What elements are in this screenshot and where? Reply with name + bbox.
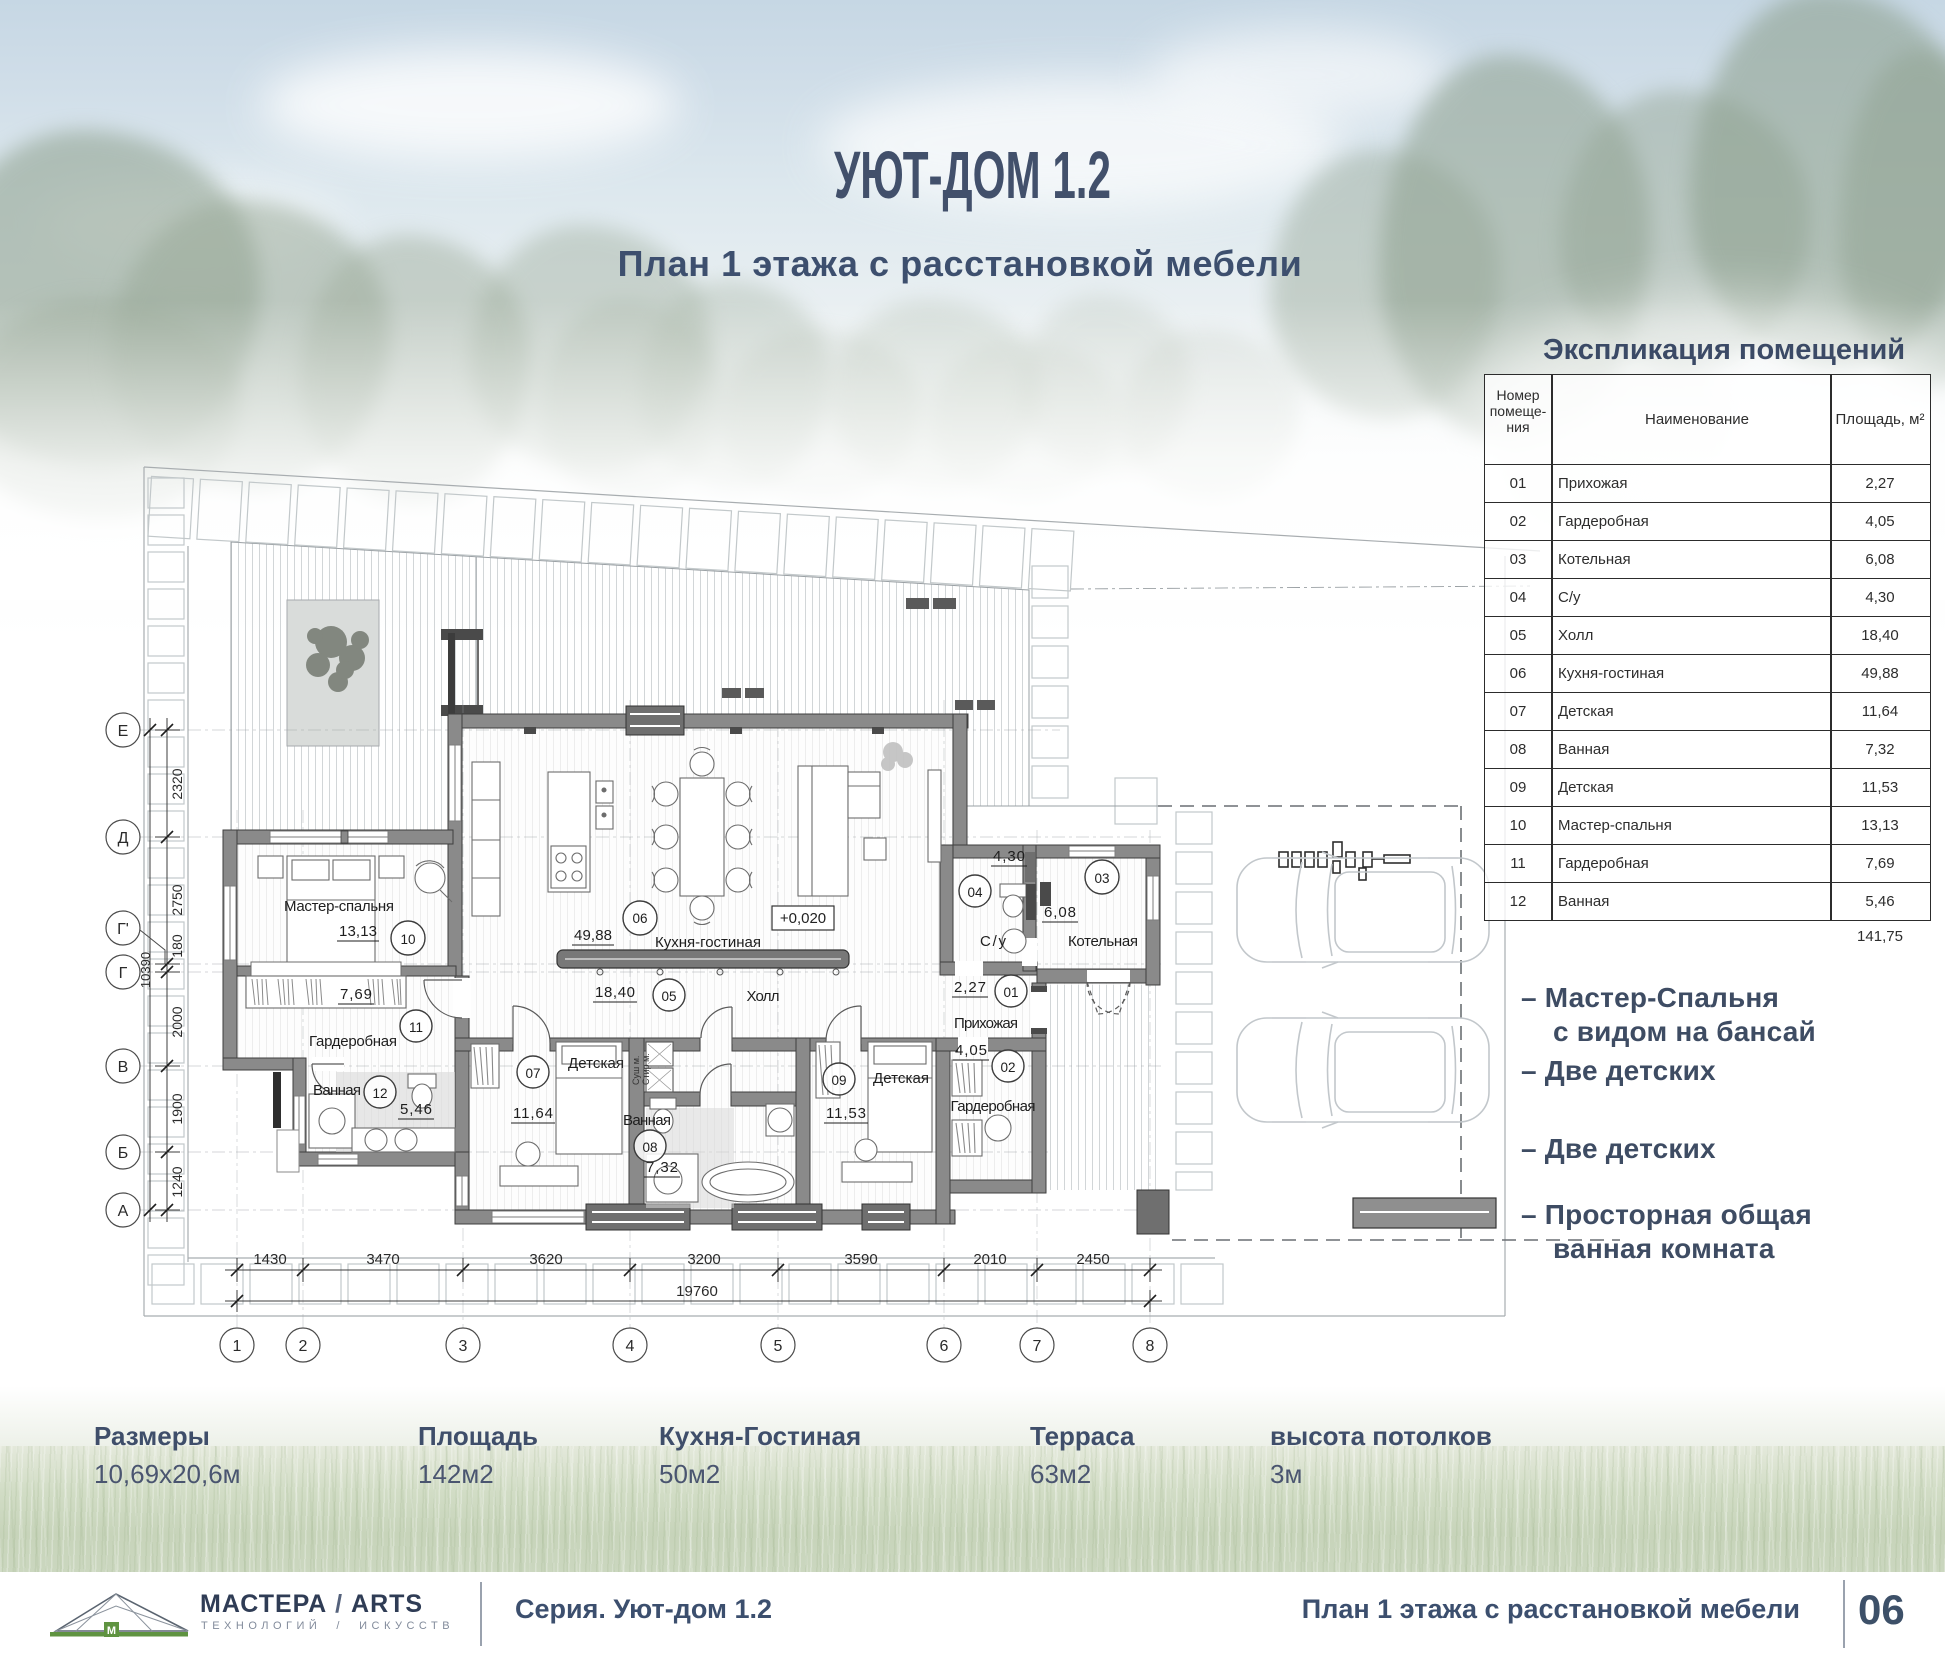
- svg-text:Детская: Детская: [568, 1055, 624, 1072]
- svg-text:6: 6: [940, 1338, 949, 1355]
- svg-text:Стир м.: Стир м.: [641, 1053, 651, 1085]
- svg-text:49,88: 49,88: [574, 927, 612, 944]
- svg-text:13,13: 13,13: [339, 923, 377, 940]
- svg-text:3590: 3590: [844, 1251, 877, 1268]
- svg-text:М: М: [107, 1625, 116, 1637]
- svg-text:7,69: 7,69: [340, 986, 372, 1003]
- svg-text:Прихожая: Прихожая: [954, 1015, 1018, 1032]
- svg-text:2450: 2450: [1076, 1251, 1109, 1268]
- svg-text:В: В: [118, 1059, 129, 1076]
- svg-text:Ванная: Ванная: [313, 1082, 361, 1099]
- svg-text:1: 1: [233, 1338, 242, 1355]
- svg-text:3470: 3470: [366, 1251, 399, 1268]
- svg-text:04: 04: [967, 885, 983, 900]
- svg-text:2,27: 2,27: [954, 979, 986, 996]
- svg-text:11: 11: [409, 1020, 423, 1035]
- svg-text:Кухня-гостиная: Кухня-гостиная: [655, 934, 761, 951]
- svg-text:05: 05: [661, 989, 676, 1004]
- svg-text:12: 12: [372, 1086, 387, 1101]
- svg-text:08: 08: [642, 1140, 657, 1155]
- svg-text:Мастер-спальня: Мастер-спальня: [284, 898, 394, 915]
- svg-text:4,30: 4,30: [993, 848, 1025, 865]
- svg-text:Е: Е: [118, 723, 129, 740]
- svg-text:07: 07: [525, 1066, 540, 1081]
- svg-text:Гардеробная: Гардеробная: [309, 1033, 397, 1050]
- svg-text:2000: 2000: [169, 1006, 185, 1037]
- svg-text:5: 5: [774, 1338, 783, 1355]
- svg-text:1900: 1900: [169, 1093, 185, 1124]
- svg-text:180: 180: [169, 934, 185, 958]
- svg-text:2750: 2750: [169, 884, 185, 915]
- svg-text:Котельная: Котельная: [1068, 933, 1138, 950]
- svg-text:02: 02: [1000, 1060, 1015, 1075]
- svg-text:5,46: 5,46: [400, 1101, 432, 1118]
- svg-text:Б: Б: [118, 1145, 129, 1162]
- svg-text:Г': Г': [117, 921, 129, 938]
- svg-text:18,40: 18,40: [595, 984, 635, 1001]
- svg-text:3200: 3200: [687, 1251, 720, 1268]
- svg-text:С/у: С/у: [980, 933, 1007, 950]
- svg-text:2: 2: [299, 1338, 308, 1355]
- svg-text:09: 09: [831, 1073, 846, 1088]
- svg-text:3620: 3620: [529, 1251, 562, 1268]
- svg-text:8: 8: [1146, 1338, 1155, 1355]
- svg-text:03: 03: [1094, 871, 1109, 886]
- svg-text:06: 06: [632, 911, 647, 926]
- svg-text:Г: Г: [119, 965, 128, 982]
- svg-text:7: 7: [1033, 1338, 1042, 1355]
- svg-text:19760: 19760: [676, 1283, 718, 1300]
- svg-text:1240: 1240: [169, 1166, 185, 1197]
- svg-text:3: 3: [459, 1338, 468, 1355]
- svg-text:1430: 1430: [253, 1251, 286, 1268]
- svg-text:4: 4: [626, 1338, 635, 1355]
- svg-text:Д: Д: [118, 830, 129, 847]
- svg-text:11,53: 11,53: [826, 1105, 866, 1122]
- svg-text:Ванная: Ванная: [623, 1112, 671, 1129]
- svg-text:2320: 2320: [169, 768, 185, 799]
- svg-text:01: 01: [1003, 985, 1018, 1000]
- svg-text:Суш м.: Суш м.: [631, 1056, 641, 1085]
- svg-text:11,64: 11,64: [513, 1105, 553, 1122]
- svg-text:10: 10: [400, 932, 415, 947]
- svg-text:6,08: 6,08: [1044, 904, 1076, 921]
- svg-text:Холл: Холл: [747, 988, 780, 1005]
- svg-text:4,05: 4,05: [955, 1042, 987, 1059]
- svg-text:Детская: Детская: [873, 1070, 929, 1087]
- svg-text:Гардеробная: Гардеробная: [951, 1098, 1036, 1115]
- svg-text:2010: 2010: [973, 1251, 1006, 1268]
- svg-text:+0,020: +0,020: [780, 910, 826, 927]
- svg-text:А: А: [118, 1203, 129, 1220]
